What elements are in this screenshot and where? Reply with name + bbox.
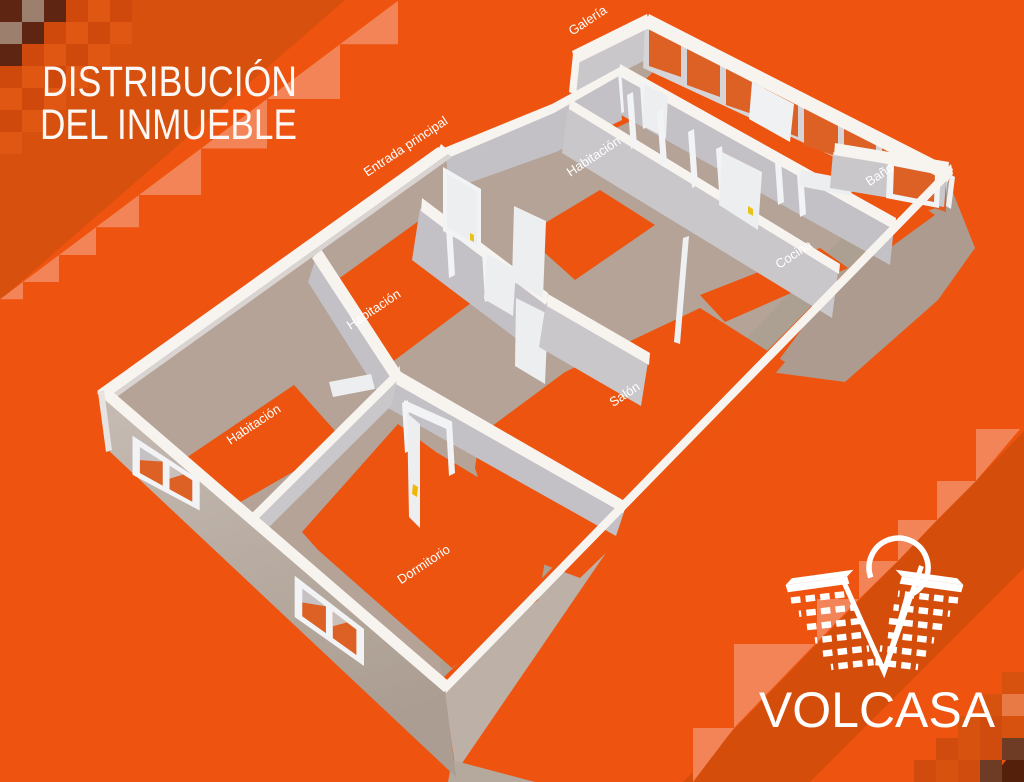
svg-text:DEL INMUEBLE: DEL INMUEBLE (40, 101, 297, 149)
svg-text:VOLCASA: VOLCASA (759, 682, 996, 738)
svg-text:DISTRIBUCIÓN: DISTRIBUCIÓN (42, 58, 297, 106)
